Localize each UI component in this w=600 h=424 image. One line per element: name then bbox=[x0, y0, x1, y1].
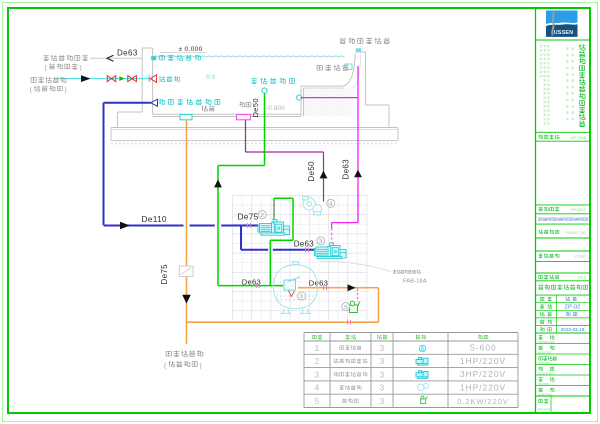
svg-text:): ) bbox=[200, 363, 202, 370]
svg-text:De75: De75 bbox=[238, 212, 259, 222]
svg-text:4: 4 bbox=[314, 383, 319, 393]
svg-text:De75: De75 bbox=[160, 264, 169, 285]
svg-text:3: 3 bbox=[379, 356, 384, 366]
svg-text:1HP/220V: 1HP/220V bbox=[460, 383, 506, 393]
svg-text:± 0.000: ± 0.000 bbox=[179, 46, 203, 53]
svg-text:3: 3 bbox=[379, 396, 384, 406]
svg-text:5: 5 bbox=[314, 396, 319, 406]
svg-text:2: 2 bbox=[261, 213, 264, 219]
svg-text:): ) bbox=[65, 87, 67, 94]
svg-text:S-600: S-600 bbox=[469, 343, 496, 353]
svg-text:De110: De110 bbox=[142, 214, 167, 224]
svg-text:2013-03-18: 2013-03-18 bbox=[561, 327, 585, 332]
svg-text:3: 3 bbox=[379, 383, 384, 393]
svg-text:De50: De50 bbox=[251, 98, 260, 117]
svg-text:3: 3 bbox=[379, 369, 384, 379]
svg-text:De50: De50 bbox=[307, 161, 316, 182]
svg-text:De63: De63 bbox=[117, 49, 138, 58]
svg-text:De63: De63 bbox=[309, 278, 328, 287]
svg-text:0.2KW/220V: 0.2KW/220V bbox=[457, 397, 509, 406]
svg-text:CHECKED: CHECKED bbox=[538, 392, 554, 396]
svg-text:1: 1 bbox=[314, 343, 319, 353]
svg-text:APPROVED: APPROVED bbox=[538, 340, 556, 344]
svg-text:3: 3 bbox=[319, 239, 322, 245]
svg-text:): ) bbox=[80, 65, 82, 72]
svg-text:PROJECT: PROJECT bbox=[538, 361, 552, 365]
svg-text:ACT PLAN: ACT PLAN bbox=[570, 136, 586, 140]
svg-text:3: 3 bbox=[379, 343, 384, 353]
svg-text:De63: De63 bbox=[242, 278, 261, 287]
svg-text:FAB-18A: FAB-18A bbox=[403, 279, 427, 285]
svg-text:De63: De63 bbox=[294, 239, 315, 248]
svg-text:CLIENT: CLIENT bbox=[575, 255, 586, 259]
svg-text:5: 5 bbox=[344, 305, 347, 311]
svg-text:USSEN: USSEN bbox=[554, 30, 574, 36]
svg-text:DRAWN: DRAWN bbox=[538, 382, 549, 386]
svg-text:-0.800: -0.800 bbox=[266, 105, 285, 112]
svg-text:De63: De63 bbox=[342, 159, 351, 180]
svg-text:1: 1 bbox=[300, 294, 303, 300]
svg-text:REMARK: REMARK bbox=[538, 408, 551, 412]
svg-text:AUDITED: AUDITED bbox=[538, 350, 552, 354]
svg-text:ZP-02: ZP-02 bbox=[565, 305, 581, 311]
svg-text:1HP/220V: 1HP/220V bbox=[460, 356, 506, 366]
svg-text:2: 2 bbox=[314, 356, 319, 366]
svg-text:DESIGNED: DESIGNED bbox=[538, 371, 555, 375]
svg-text:TITLE: TITLE bbox=[577, 276, 586, 280]
svg-text:3: 3 bbox=[314, 369, 319, 379]
svg-text:3HP/220V: 3HP/220V bbox=[460, 369, 506, 379]
svg-text:PROJECT: PROJECT bbox=[571, 208, 586, 212]
svg-text:PROJECT NO: PROJECT NO bbox=[566, 231, 587, 235]
